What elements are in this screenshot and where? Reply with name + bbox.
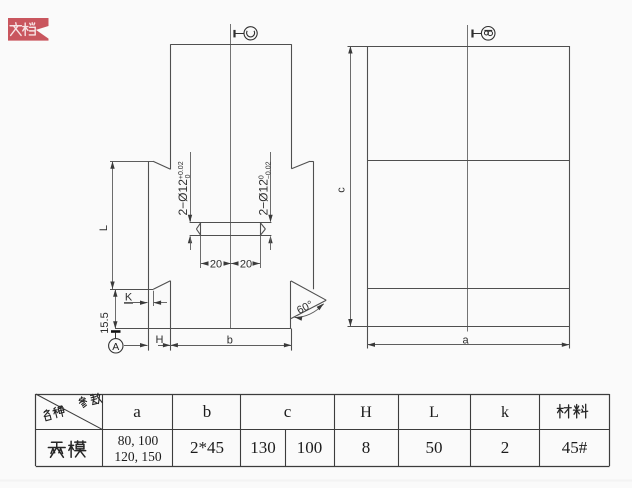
svg-text:50: 50 bbox=[426, 438, 443, 457]
svg-text:k: k bbox=[501, 404, 509, 421]
svg-text:H: H bbox=[360, 404, 372, 421]
svg-text:a: a bbox=[462, 334, 469, 346]
svg-text:45#: 45# bbox=[562, 438, 588, 457]
svg-text:130: 130 bbox=[250, 438, 276, 457]
svg-text:b: b bbox=[203, 402, 212, 421]
svg-text:b: b bbox=[227, 335, 233, 347]
svg-text:20: 20 bbox=[240, 259, 252, 271]
svg-text:A: A bbox=[112, 341, 119, 353]
svg-text:L: L bbox=[98, 225, 110, 231]
svg-text:8: 8 bbox=[362, 438, 371, 457]
svg-text:2: 2 bbox=[501, 438, 510, 457]
svg-text:15.5: 15.5 bbox=[99, 312, 111, 333]
svg-text:20: 20 bbox=[210, 259, 222, 271]
svg-text:L: L bbox=[429, 404, 439, 421]
svg-text:100: 100 bbox=[297, 438, 323, 457]
svg-text:K: K bbox=[125, 292, 133, 304]
svg-text:2*45: 2*45 bbox=[190, 438, 224, 457]
svg-text:a: a bbox=[133, 402, 141, 421]
svg-text:120, 150: 120, 150 bbox=[114, 449, 162, 464]
svg-text:c: c bbox=[284, 402, 292, 421]
svg-text:c: c bbox=[336, 187, 348, 193]
svg-text:80, 100: 80, 100 bbox=[118, 433, 159, 448]
svg-text:H: H bbox=[156, 334, 164, 346]
